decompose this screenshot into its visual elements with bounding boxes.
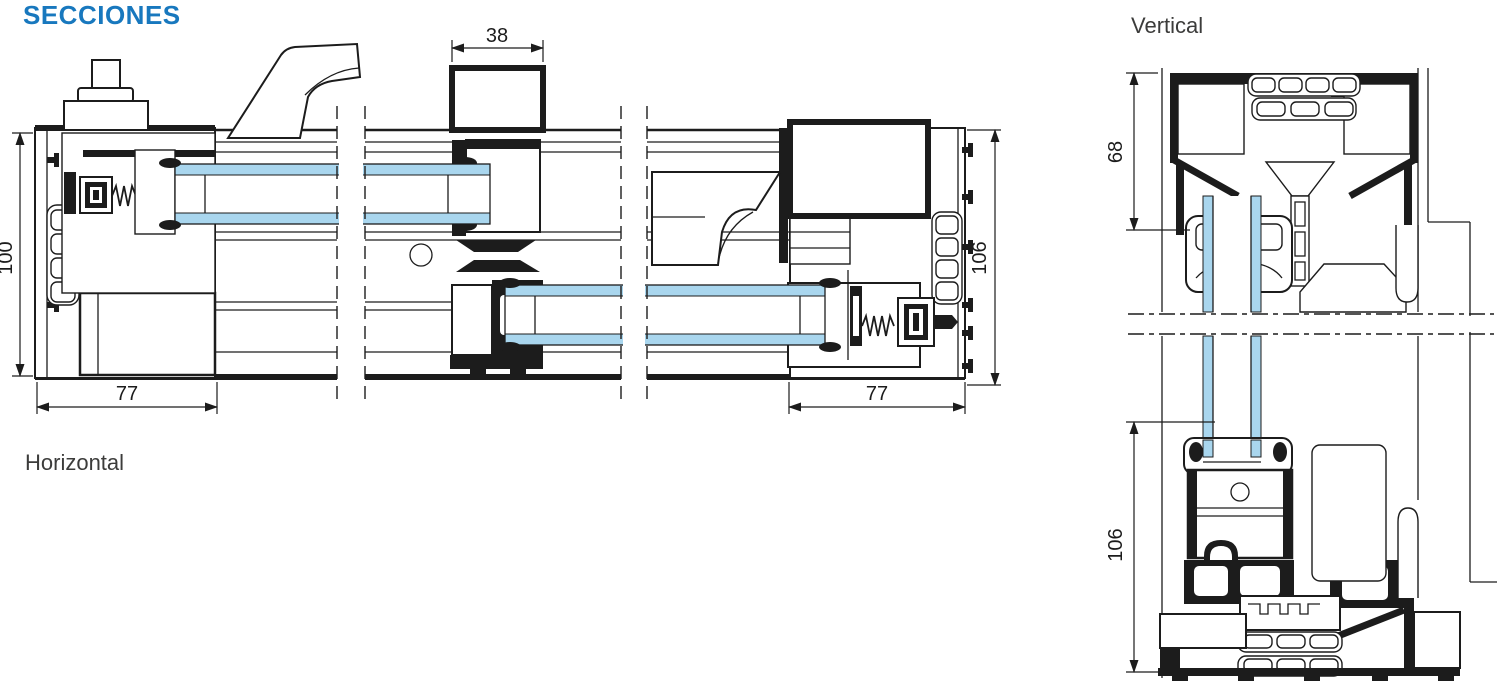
dim-value-106-vertical: 106 (1105, 528, 1127, 561)
horizontal-section-drawing: 38 100 106 77 77 Horizontal (0, 25, 1001, 475)
glass-pane (505, 285, 825, 296)
glass-pane (175, 213, 490, 224)
vertical-section-drawing: Vertical (1105, 13, 1497, 681)
dim-value-68: 68 (1105, 141, 1127, 163)
screen-channel-upper (1396, 225, 1418, 302)
lock-keep (64, 60, 148, 130)
page-title: SECCIONES (23, 0, 181, 30)
screen-channel-lower (1398, 508, 1418, 598)
dim-value-106: 106 (969, 241, 991, 274)
glass-pane (1251, 196, 1261, 312)
left-jamb-profile (35, 125, 215, 378)
dimension-77-left: 77 (37, 382, 217, 414)
glass-pane (1203, 196, 1213, 312)
dim-value-100: 100 (0, 241, 17, 274)
sash-box (80, 293, 215, 375)
sash-chamber (1300, 264, 1406, 312)
handle-base-block (790, 122, 928, 216)
glazing-unit-left (159, 158, 490, 230)
dimension-77-right: 77 (789, 382, 965, 414)
dim-value-77-right: 77 (866, 383, 888, 405)
dimension-100: 100 (0, 133, 33, 376)
interlock-cap (452, 68, 543, 130)
dimension-38: 38 (452, 25, 543, 62)
vertical-section-label: Vertical (1131, 13, 1203, 38)
dim-value-38: 38 (486, 25, 508, 47)
glass-pane (175, 164, 490, 175)
drain-hole (410, 244, 432, 266)
horizontal-section-label: Horizontal (25, 450, 124, 475)
dimension-106-horizontal: 106 (967, 130, 1001, 385)
dim-value-77-left: 77 (116, 383, 138, 405)
glass-pane (505, 334, 825, 345)
door-handle-right (652, 172, 780, 265)
secciones-diagram: SECCIONES (0, 0, 1500, 681)
secciones-panel: SECCIONES (0, 0, 1500, 681)
panel-behind (1312, 445, 1386, 581)
bottom-sash-profile (1184, 438, 1292, 558)
handle-riser (779, 128, 788, 263)
